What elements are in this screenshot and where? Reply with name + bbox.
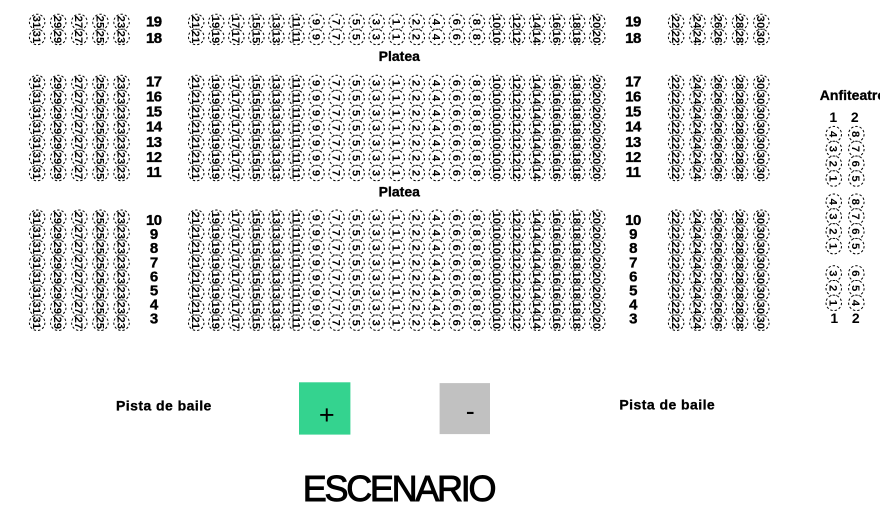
svg-text:18: 18 [570,107,582,120]
svg-text:20: 20 [590,31,602,44]
svg-text:22: 22 [669,256,681,269]
svg-text:15: 15 [249,316,261,329]
svg-text:11: 11 [289,16,301,28]
svg-text:19: 19 [209,152,221,165]
svg-text:22: 22 [669,137,681,150]
svg-text:31: 31 [30,301,42,314]
svg-text:17: 17 [229,31,241,44]
svg-text:4: 4 [430,290,442,297]
svg-text:4: 4 [430,34,442,41]
svg-text:11: 11 [289,242,301,254]
svg-text:23: 23 [114,77,126,90]
svg-text:18: 18 [570,77,582,90]
svg-text:29: 29 [51,256,63,269]
svg-text:23: 23 [114,241,126,254]
svg-text:9: 9 [309,230,321,236]
svg-text:5: 5 [350,19,362,25]
svg-text:19: 19 [209,92,221,105]
svg-text:9: 9 [309,245,321,251]
svg-text:13: 13 [269,211,281,224]
svg-text:20: 20 [590,16,602,29]
svg-text:1: 1 [390,245,402,251]
svg-text:22: 22 [669,107,681,120]
svg-text:18: 18 [570,286,582,299]
svg-text:29: 29 [51,152,63,165]
svg-text:1: 1 [390,95,402,101]
svg-text:5: 5 [350,230,362,236]
svg-text:26: 26 [712,92,724,105]
svg-text:16: 16 [550,316,562,329]
svg-text:1: 1 [390,320,402,326]
svg-text:16: 16 [550,107,562,120]
svg-text:10: 10 [490,316,502,329]
svg-text:4: 4 [430,260,442,267]
svg-text:16: 16 [550,122,562,135]
svg-text:23: 23 [114,152,126,165]
svg-text:15: 15 [249,211,261,224]
svg-text:1: 1 [390,34,402,40]
svg-text:5: 5 [350,275,362,281]
svg-text:14: 14 [530,16,542,29]
svg-text:3: 3 [370,215,382,221]
svg-text:16: 16 [550,286,562,299]
svg-text:26: 26 [712,16,724,29]
svg-text:23: 23 [114,31,126,44]
svg-text:3: 3 [370,95,382,101]
svg-text:2: 2 [410,275,422,281]
svg-text:23: 23 [114,301,126,314]
svg-text:2: 2 [827,161,839,167]
svg-text:4: 4 [849,300,861,307]
svg-text:17: 17 [229,286,241,299]
svg-text:20: 20 [590,152,602,165]
svg-text:31: 31 [30,77,42,90]
svg-text:24: 24 [690,256,702,269]
svg-text:7: 7 [849,146,861,152]
svg-text:10: 10 [490,77,502,90]
svg-text:18: 18 [570,137,582,150]
svg-text:19: 19 [209,316,221,329]
svg-text:25: 25 [93,107,105,120]
svg-text:10: 10 [490,256,502,269]
svg-text:22: 22 [669,167,681,180]
svg-text:30: 30 [754,241,766,254]
svg-text:25: 25 [93,137,105,150]
svg-text:6: 6 [450,320,462,326]
svg-text:29: 29 [51,31,63,44]
svg-text:27: 27 [72,316,84,329]
svg-text:4: 4 [827,131,839,138]
svg-text:11: 11 [289,287,301,299]
svg-text:25: 25 [93,92,105,105]
svg-text:14: 14 [530,107,542,120]
svg-text:28: 28 [733,31,745,44]
svg-text:15: 15 [249,241,261,254]
svg-text:11: 11 [289,302,301,314]
svg-text:23: 23 [114,137,126,150]
svg-text:5: 5 [350,305,362,311]
svg-text:5: 5 [350,155,362,161]
svg-text:3: 3 [370,170,382,176]
svg-text:26: 26 [712,77,724,90]
svg-text:7: 7 [330,260,342,266]
svg-text:16: 16 [550,31,562,44]
svg-text:18: 18 [625,30,641,47]
svg-text:12: 12 [510,241,522,254]
svg-text:12: 12 [510,16,522,29]
svg-text:2: 2 [410,155,422,161]
svg-text:16: 16 [550,152,562,165]
svg-text:5: 5 [350,125,362,131]
svg-text:18: 18 [570,31,582,44]
svg-text:29: 29 [51,286,63,299]
svg-text:13: 13 [269,167,281,180]
svg-text:29: 29 [51,167,63,180]
svg-text:7: 7 [330,80,342,86]
svg-text:23: 23 [114,226,126,239]
svg-text:24: 24 [690,152,702,165]
svg-text:24: 24 [690,167,702,180]
svg-text:13: 13 [269,152,281,165]
svg-text:9: 9 [309,80,321,86]
svg-text:23: 23 [114,286,126,299]
svg-text:21: 21 [189,226,201,239]
svg-text:27: 27 [72,301,84,314]
svg-text:31: 31 [30,316,42,329]
svg-text:19: 19 [209,226,221,239]
svg-text:5: 5 [350,80,362,86]
svg-text:23: 23 [114,107,126,120]
svg-text:30: 30 [754,122,766,135]
svg-text:18: 18 [570,226,582,239]
svg-text:22: 22 [669,31,681,44]
svg-text:26: 26 [712,107,724,120]
svg-text:8: 8 [470,170,482,176]
svg-text:13: 13 [269,256,281,269]
svg-text:21: 21 [189,167,201,180]
svg-text:15: 15 [249,122,261,135]
svg-text:10: 10 [490,92,502,105]
svg-text:1: 1 [827,175,839,181]
svg-text:22: 22 [669,77,681,90]
svg-text:4: 4 [430,125,442,132]
svg-text:28: 28 [733,167,745,180]
svg-text:12: 12 [510,137,522,150]
svg-text:5: 5 [350,215,362,221]
svg-text:24: 24 [690,31,702,44]
svg-text:+: + [319,400,335,430]
svg-text:18: 18 [570,167,582,180]
svg-text:10: 10 [490,301,502,314]
svg-text:18: 18 [570,92,582,105]
svg-text:2: 2 [410,80,422,86]
svg-text:28: 28 [733,107,745,120]
svg-text:11: 11 [289,92,301,104]
svg-text:29: 29 [51,211,63,224]
svg-text:20: 20 [590,107,602,120]
svg-text:10: 10 [490,16,502,29]
svg-text:10: 10 [490,226,502,239]
svg-text:15: 15 [249,31,261,44]
svg-text:7: 7 [330,275,342,281]
svg-text:24: 24 [690,92,702,105]
svg-text:6: 6 [450,245,462,251]
svg-text:3: 3 [370,260,382,266]
svg-text:21: 21 [189,286,201,299]
svg-text:6: 6 [849,161,861,167]
svg-text:21: 21 [189,92,201,105]
svg-text:21: 21 [189,301,201,314]
svg-text:29: 29 [51,137,63,150]
svg-text:2: 2 [410,125,422,131]
svg-text:1: 1 [390,170,402,176]
svg-text:31: 31 [30,92,42,105]
svg-text:27: 27 [72,167,84,180]
svg-text:20: 20 [590,271,602,284]
svg-text:17: 17 [229,271,241,284]
svg-text:24: 24 [690,241,702,254]
svg-text:23: 23 [114,16,126,29]
svg-text:Platea: Platea [379,48,420,64]
svg-text:14: 14 [530,241,542,254]
svg-text:1: 1 [827,243,839,249]
svg-text:17: 17 [229,301,241,314]
svg-text:7: 7 [330,170,342,176]
svg-text:10: 10 [490,107,502,120]
svg-text:29: 29 [51,92,63,105]
svg-text:6: 6 [450,305,462,311]
svg-text:18: 18 [570,316,582,329]
svg-text:14: 14 [530,137,542,150]
svg-text:19: 19 [209,122,221,135]
svg-text:2: 2 [410,305,422,311]
svg-text:7: 7 [849,213,861,219]
svg-text:19: 19 [209,167,221,180]
svg-text:16: 16 [550,137,562,150]
svg-text:29: 29 [51,271,63,284]
svg-text:20: 20 [590,92,602,105]
svg-text:8: 8 [470,230,482,236]
svg-text:1: 1 [390,230,402,236]
svg-text:11: 11 [289,152,301,164]
svg-text:23: 23 [114,271,126,284]
svg-text:30: 30 [754,16,766,29]
svg-text:3: 3 [370,275,382,281]
svg-text:31: 31 [30,271,42,284]
svg-text:7: 7 [330,290,342,296]
svg-text:2: 2 [410,110,422,116]
svg-text:19: 19 [209,301,221,314]
svg-text:24: 24 [690,77,702,90]
svg-text:8: 8 [470,80,482,86]
svg-text:18: 18 [570,241,582,254]
svg-text:25: 25 [93,256,105,269]
svg-text:2: 2 [827,228,839,234]
svg-text:6: 6 [450,275,462,281]
svg-text:17: 17 [229,107,241,120]
svg-text:25: 25 [93,316,105,329]
svg-text:25: 25 [93,211,105,224]
svg-text:27: 27 [72,31,84,44]
svg-text:22: 22 [669,286,681,299]
svg-text:23: 23 [114,256,126,269]
svg-text:23: 23 [114,122,126,135]
svg-text:27: 27 [72,122,84,135]
svg-text:3: 3 [629,311,637,328]
svg-text:13: 13 [269,77,281,90]
svg-text:10: 10 [490,286,502,299]
svg-text:28: 28 [733,122,745,135]
svg-text:3: 3 [370,155,382,161]
svg-text:2: 2 [410,260,422,266]
svg-text:9: 9 [309,320,321,326]
svg-text:2: 2 [410,320,422,326]
svg-text:31: 31 [30,241,42,254]
svg-text:12: 12 [510,122,522,135]
svg-text:19: 19 [209,137,221,150]
svg-text:11: 11 [289,257,301,269]
svg-text:30: 30 [754,301,766,314]
svg-text:3: 3 [370,305,382,311]
svg-text:14: 14 [530,211,542,224]
svg-text:11: 11 [289,212,301,224]
svg-text:21: 21 [189,122,201,135]
svg-text:28: 28 [733,301,745,314]
svg-text:26: 26 [712,167,724,180]
svg-text:28: 28 [733,152,745,165]
svg-text:5: 5 [350,260,362,266]
svg-text:28: 28 [733,137,745,150]
svg-text:31: 31 [30,31,42,44]
svg-text:3: 3 [827,146,839,152]
svg-text:8: 8 [470,320,482,326]
svg-text:6: 6 [450,110,462,116]
svg-text:21: 21 [189,256,201,269]
svg-text:28: 28 [733,211,745,224]
svg-text:21: 21 [189,211,201,224]
svg-text:16: 16 [550,226,562,239]
svg-text:28: 28 [733,226,745,239]
svg-text:7: 7 [330,19,342,25]
svg-text:26: 26 [712,122,724,135]
svg-text:4: 4 [430,215,442,222]
svg-text:14: 14 [530,316,542,329]
svg-text:3: 3 [370,290,382,296]
svg-text:8: 8 [470,95,482,101]
svg-text:7: 7 [330,95,342,101]
svg-text:20: 20 [590,301,602,314]
svg-text:28: 28 [733,316,745,329]
svg-text:19: 19 [209,256,221,269]
svg-text:26: 26 [712,256,724,269]
svg-text:26: 26 [712,286,724,299]
svg-text:15: 15 [249,152,261,165]
svg-text:2: 2 [410,170,422,176]
svg-text:2: 2 [410,19,422,25]
svg-text:14: 14 [530,256,542,269]
svg-text:4: 4 [430,245,442,252]
svg-text:28: 28 [733,16,745,29]
svg-text:12: 12 [510,226,522,239]
svg-text:11: 11 [289,122,301,134]
svg-text:8: 8 [470,19,482,25]
svg-text:2: 2 [410,140,422,146]
svg-text:8: 8 [470,155,482,161]
svg-text:14: 14 [530,301,542,314]
svg-text:19: 19 [209,77,221,90]
svg-text:24: 24 [690,16,702,29]
svg-text:22: 22 [669,226,681,239]
svg-text:5: 5 [849,175,861,181]
svg-text:16: 16 [550,167,562,180]
svg-text:6: 6 [450,34,462,40]
svg-text:30: 30 [754,107,766,120]
svg-text:14: 14 [530,226,542,239]
svg-text:8: 8 [470,260,482,266]
svg-text:7: 7 [330,215,342,221]
svg-text:15: 15 [249,256,261,269]
svg-text:8: 8 [470,215,482,221]
svg-text:9: 9 [309,260,321,266]
svg-text:30: 30 [754,316,766,329]
svg-text:12: 12 [510,107,522,120]
svg-text:12: 12 [510,92,522,105]
svg-text:26: 26 [712,31,724,44]
svg-text:29: 29 [51,77,63,90]
svg-text:17: 17 [229,316,241,329]
svg-text:12: 12 [510,152,522,165]
svg-text:31: 31 [30,107,42,120]
svg-text:10: 10 [490,211,502,224]
svg-text:9: 9 [309,34,321,40]
svg-text:2: 2 [410,230,422,236]
svg-text:3: 3 [370,320,382,326]
svg-text:9: 9 [309,305,321,311]
svg-text:29: 29 [51,16,63,29]
svg-text:26: 26 [712,211,724,224]
svg-text:31: 31 [30,137,42,150]
svg-text:17: 17 [229,256,241,269]
svg-text:2: 2 [827,285,839,291]
svg-text:6: 6 [450,170,462,176]
svg-text:6: 6 [450,290,462,296]
svg-text:7: 7 [330,125,342,131]
svg-text:5: 5 [350,140,362,146]
svg-text:31: 31 [30,211,42,224]
svg-text:4: 4 [430,305,442,312]
svg-text:22: 22 [669,122,681,135]
svg-text:29: 29 [51,301,63,314]
svg-text:3: 3 [827,213,839,219]
svg-text:30: 30 [754,137,766,150]
svg-text:2: 2 [410,290,422,296]
svg-text:30: 30 [754,152,766,165]
svg-text:23: 23 [114,211,126,224]
svg-text:17: 17 [229,92,241,105]
svg-text:18: 18 [570,271,582,284]
svg-text:9: 9 [309,110,321,116]
svg-text:18: 18 [570,152,582,165]
svg-text:30: 30 [754,77,766,90]
svg-text:2: 2 [410,245,422,251]
svg-text:2: 2 [410,95,422,101]
svg-text:29: 29 [51,122,63,135]
svg-text:3: 3 [370,110,382,116]
svg-text:5: 5 [350,245,362,251]
svg-text:19: 19 [209,211,221,224]
svg-text:23: 23 [114,92,126,105]
svg-text:14: 14 [530,286,542,299]
